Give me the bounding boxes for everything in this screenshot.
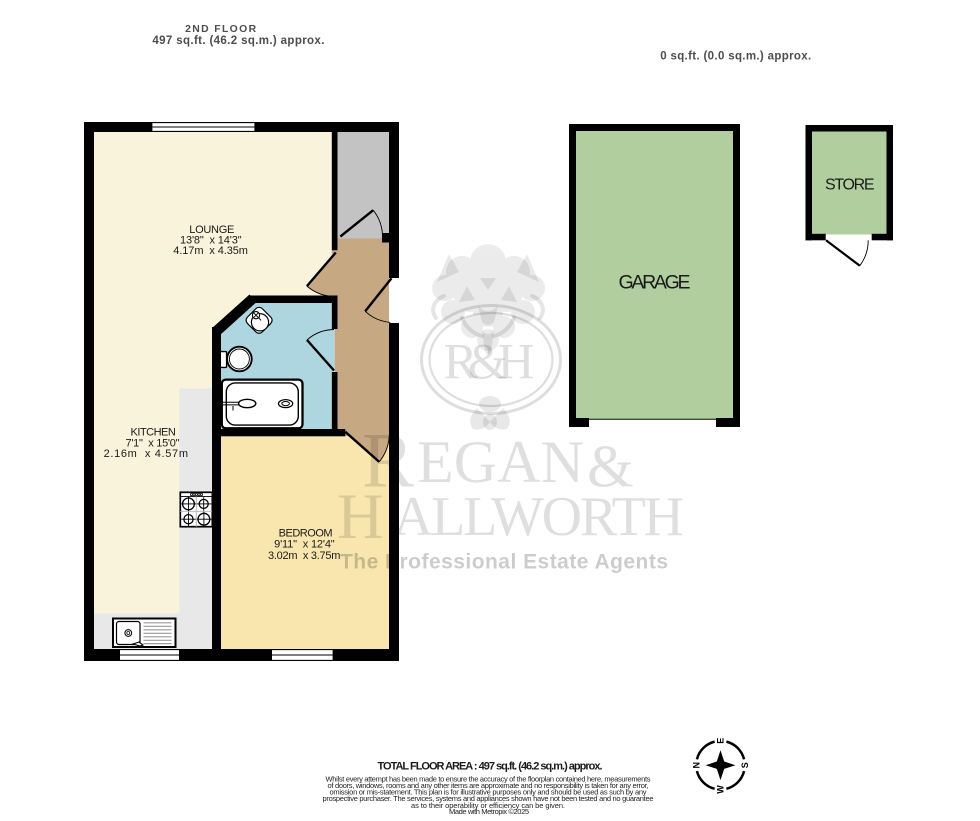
- svg-text:E: E: [716, 738, 726, 744]
- svg-text:3.02m x 3.75m: 3.02m x 3.75m: [268, 550, 340, 562]
- svg-text:EGAN: EGAN: [417, 429, 584, 495]
- svg-text:2.16m x 4.57m: 2.16m x 4.57m: [104, 448, 188, 460]
- svg-text:W: W: [716, 785, 726, 794]
- svg-text:R&H: R&H: [444, 335, 535, 391]
- svg-text:GARAGE: GARAGE: [619, 272, 691, 294]
- svg-text:TOTAL FLOOR AREA : 497 sq.ft.: TOTAL FLOOR AREA : 497 sq.ft. (46.2 sq.m…: [378, 760, 603, 772]
- svg-text:H: H: [337, 481, 384, 552]
- svg-text:9'11" x 12'4": 9'11" x 12'4": [274, 538, 335, 550]
- svg-text:4.17m x 4.35m: 4.17m x 4.35m: [173, 245, 248, 257]
- svg-text:STORE: STORE: [825, 176, 875, 193]
- svg-text:N: N: [692, 762, 702, 769]
- svg-text:Made with Metropix ©2025: Made with Metropix ©2025: [449, 807, 529, 816]
- svg-text:497 sq.ft. (46.2 sq.m.) approx: 497 sq.ft. (46.2 sq.m.) approx.: [152, 35, 324, 47]
- svg-text:The Professional Estate Agents: The Professional Estate Agents: [340, 551, 668, 574]
- svg-text:ALLWORTH: ALLWORTH: [393, 486, 684, 548]
- svg-text:0 sq.ft. (0.0 sq.m.) approx.: 0 sq.ft. (0.0 sq.m.) approx.: [660, 50, 811, 62]
- svg-text:S: S: [740, 762, 750, 768]
